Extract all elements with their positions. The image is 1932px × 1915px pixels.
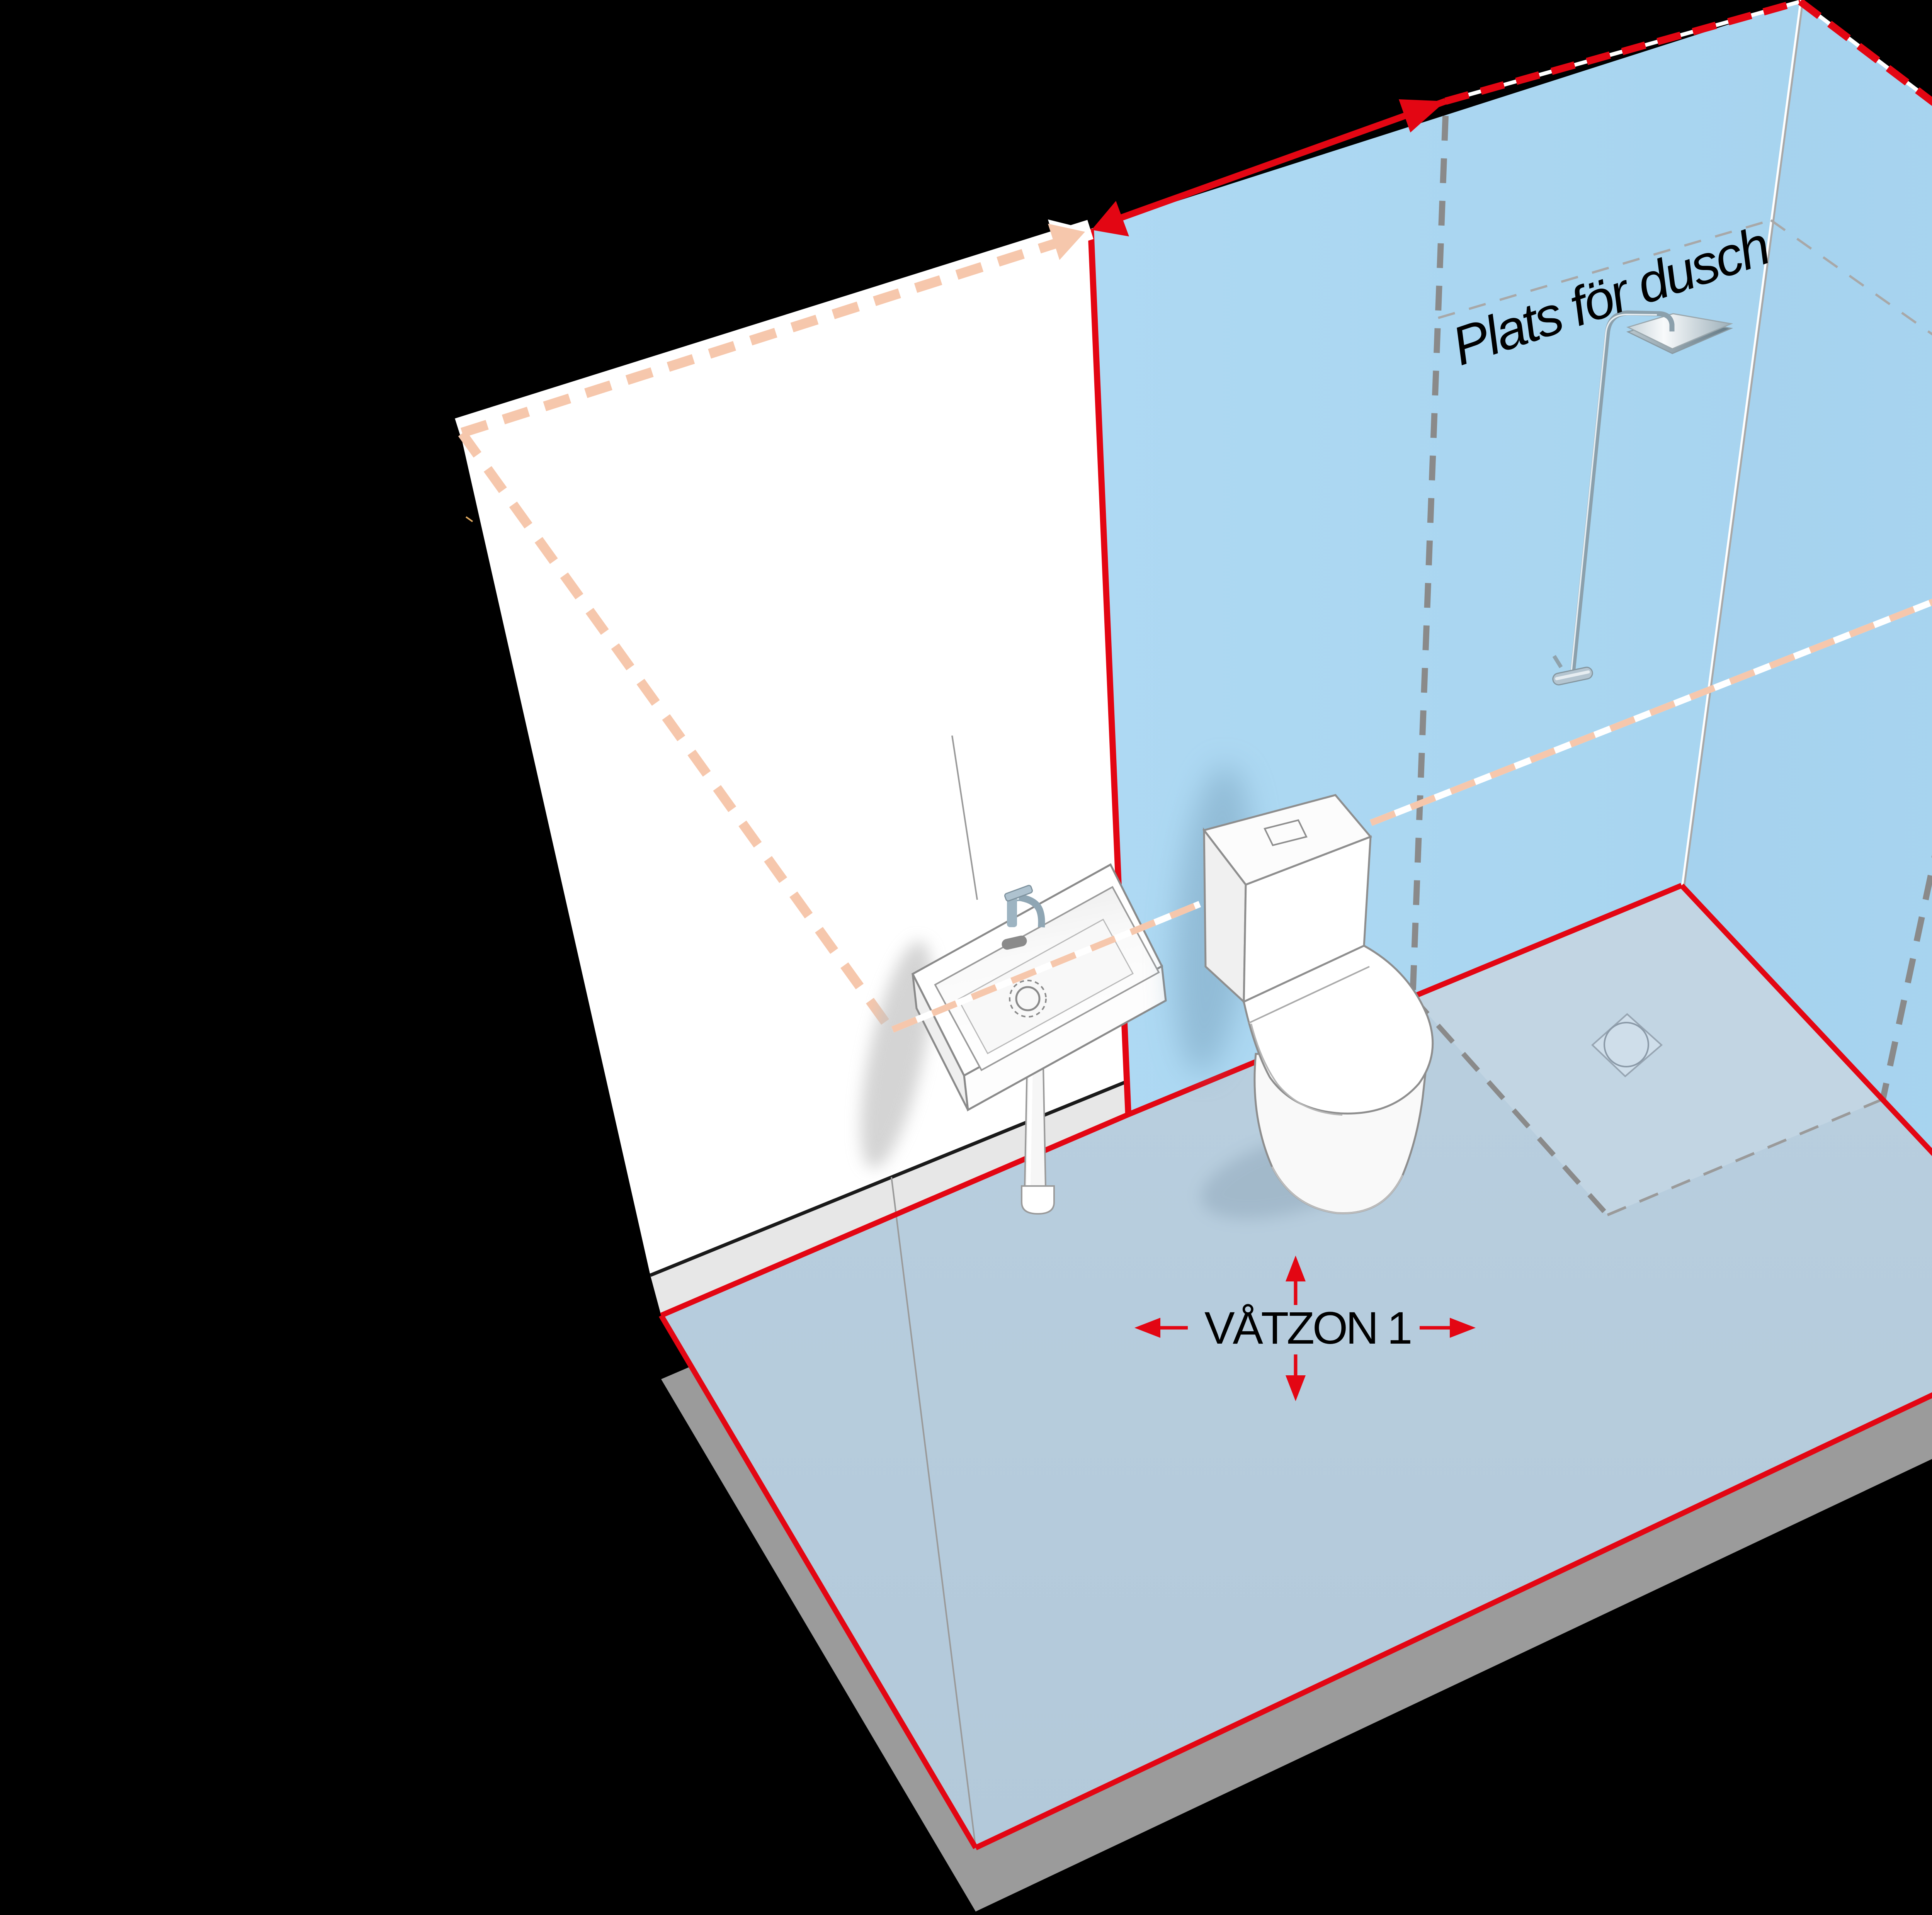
svg-text:VÅTZON 1: VÅTZON 1 bbox=[1204, 1303, 1410, 1354]
